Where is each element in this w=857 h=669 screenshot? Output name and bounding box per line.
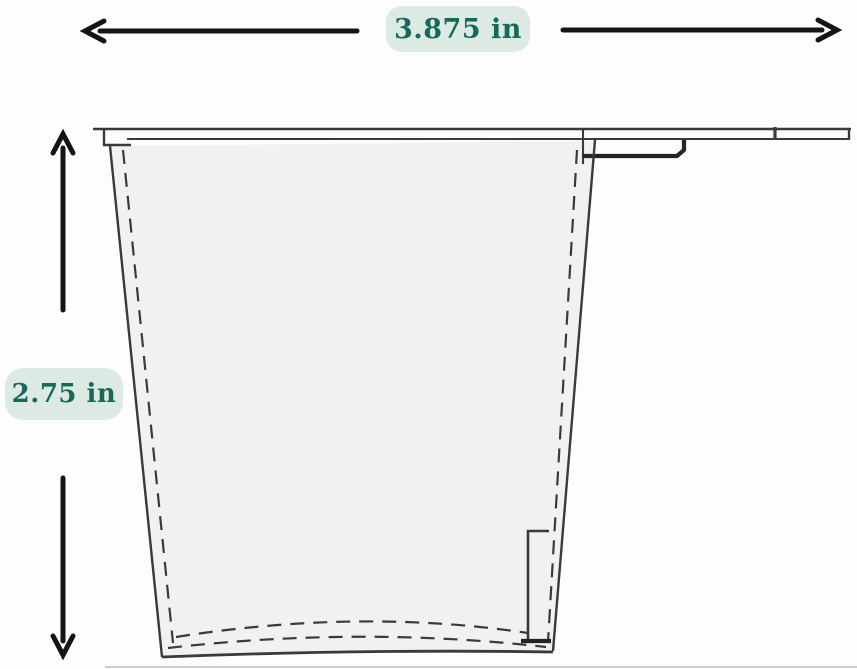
diagram-canvas: 3.875 in 2.75 in (0, 0, 857, 669)
height-dimension-value: 2.75 in (12, 379, 117, 409)
width-dimension-label: 3.875 in (386, 6, 530, 52)
cup-interior-fill (111, 141, 594, 656)
height-dimension-label: 2.75 in (5, 368, 123, 420)
width-dimension-value: 3.875 in (394, 14, 522, 45)
clip-hook-bar (583, 140, 684, 156)
cup-cross-section-drawing (0, 0, 857, 669)
side-clip-bracket (583, 129, 684, 164)
